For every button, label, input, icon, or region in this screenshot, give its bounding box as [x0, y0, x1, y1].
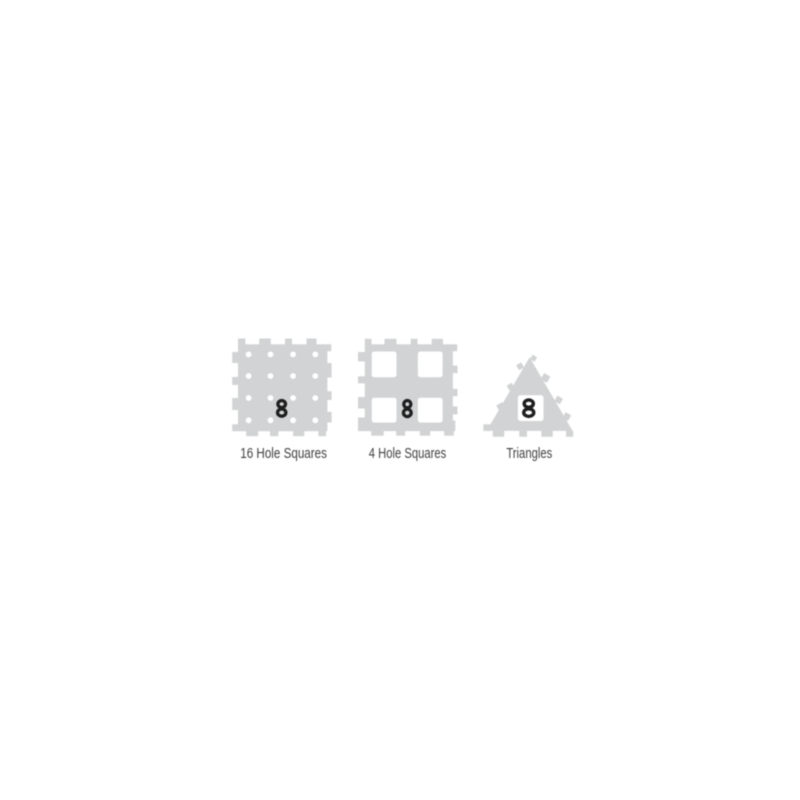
svg-text:4 Hole Squares: 4 Hole Squares	[369, 445, 446, 462]
svg-text:16 Hole Squares: 16 Hole Squares	[240, 445, 327, 462]
svg-text:Triangles: Triangles	[506, 445, 552, 462]
